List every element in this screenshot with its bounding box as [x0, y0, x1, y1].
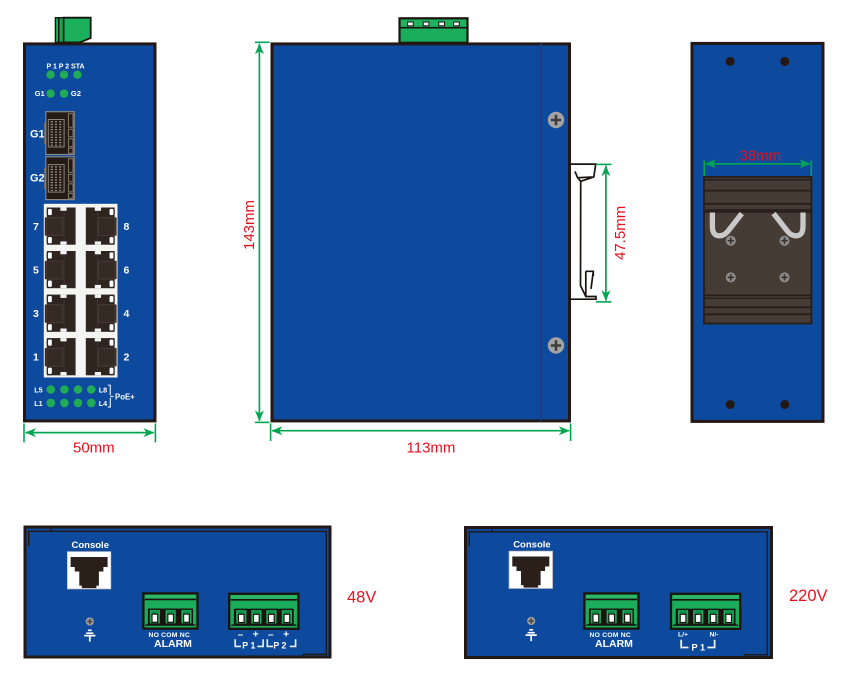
svg-text:+: +	[253, 629, 259, 640]
svg-text:7: 7	[33, 221, 39, 233]
svg-text:Console: Console	[513, 540, 550, 551]
svg-text:P 1: P 1	[692, 642, 706, 652]
svg-text:G2: G2	[30, 173, 45, 185]
svg-text:P 1: P 1	[242, 641, 255, 651]
svg-text:Console: Console	[72, 540, 109, 551]
svg-text:113mm: 113mm	[407, 439, 456, 456]
svg-text:+: +	[283, 629, 289, 640]
svg-text:ALARM: ALARM	[595, 638, 633, 650]
svg-text:N/-: N/-	[710, 631, 719, 638]
svg-text:4: 4	[124, 308, 130, 320]
svg-text:1: 1	[33, 352, 39, 364]
svg-text:PoE+: PoE+	[115, 393, 135, 402]
svg-text:47.5mm: 47.5mm	[612, 206, 629, 260]
svg-text:G2: G2	[71, 89, 81, 98]
svg-text:L4: L4	[99, 399, 107, 408]
svg-text:3: 3	[33, 308, 39, 320]
svg-text:L1: L1	[34, 399, 42, 408]
svg-text:L/+: L/+	[678, 631, 688, 638]
svg-text:50mm: 50mm	[73, 439, 115, 456]
svg-text:–: –	[268, 629, 274, 640]
svg-text:8: 8	[124, 221, 130, 233]
svg-text:G1: G1	[35, 89, 46, 98]
svg-text:L5: L5	[34, 386, 42, 395]
svg-text:38mm: 38mm	[740, 148, 782, 165]
svg-text:L8: L8	[99, 386, 107, 395]
svg-text:6: 6	[124, 265, 130, 277]
svg-text:P 1 P 2 STA: P 1 P 2 STA	[47, 61, 86, 70]
svg-text:G1: G1	[30, 129, 45, 141]
svg-text:ALARM: ALARM	[154, 638, 192, 650]
svg-text:5: 5	[33, 265, 39, 277]
svg-text:P 2: P 2	[273, 641, 286, 651]
svg-text:220V: 220V	[789, 587, 828, 605]
svg-text:48V: 48V	[347, 589, 376, 607]
svg-text:2: 2	[124, 352, 130, 364]
svg-text:–: –	[238, 629, 244, 640]
svg-text:143mm: 143mm	[241, 200, 258, 250]
